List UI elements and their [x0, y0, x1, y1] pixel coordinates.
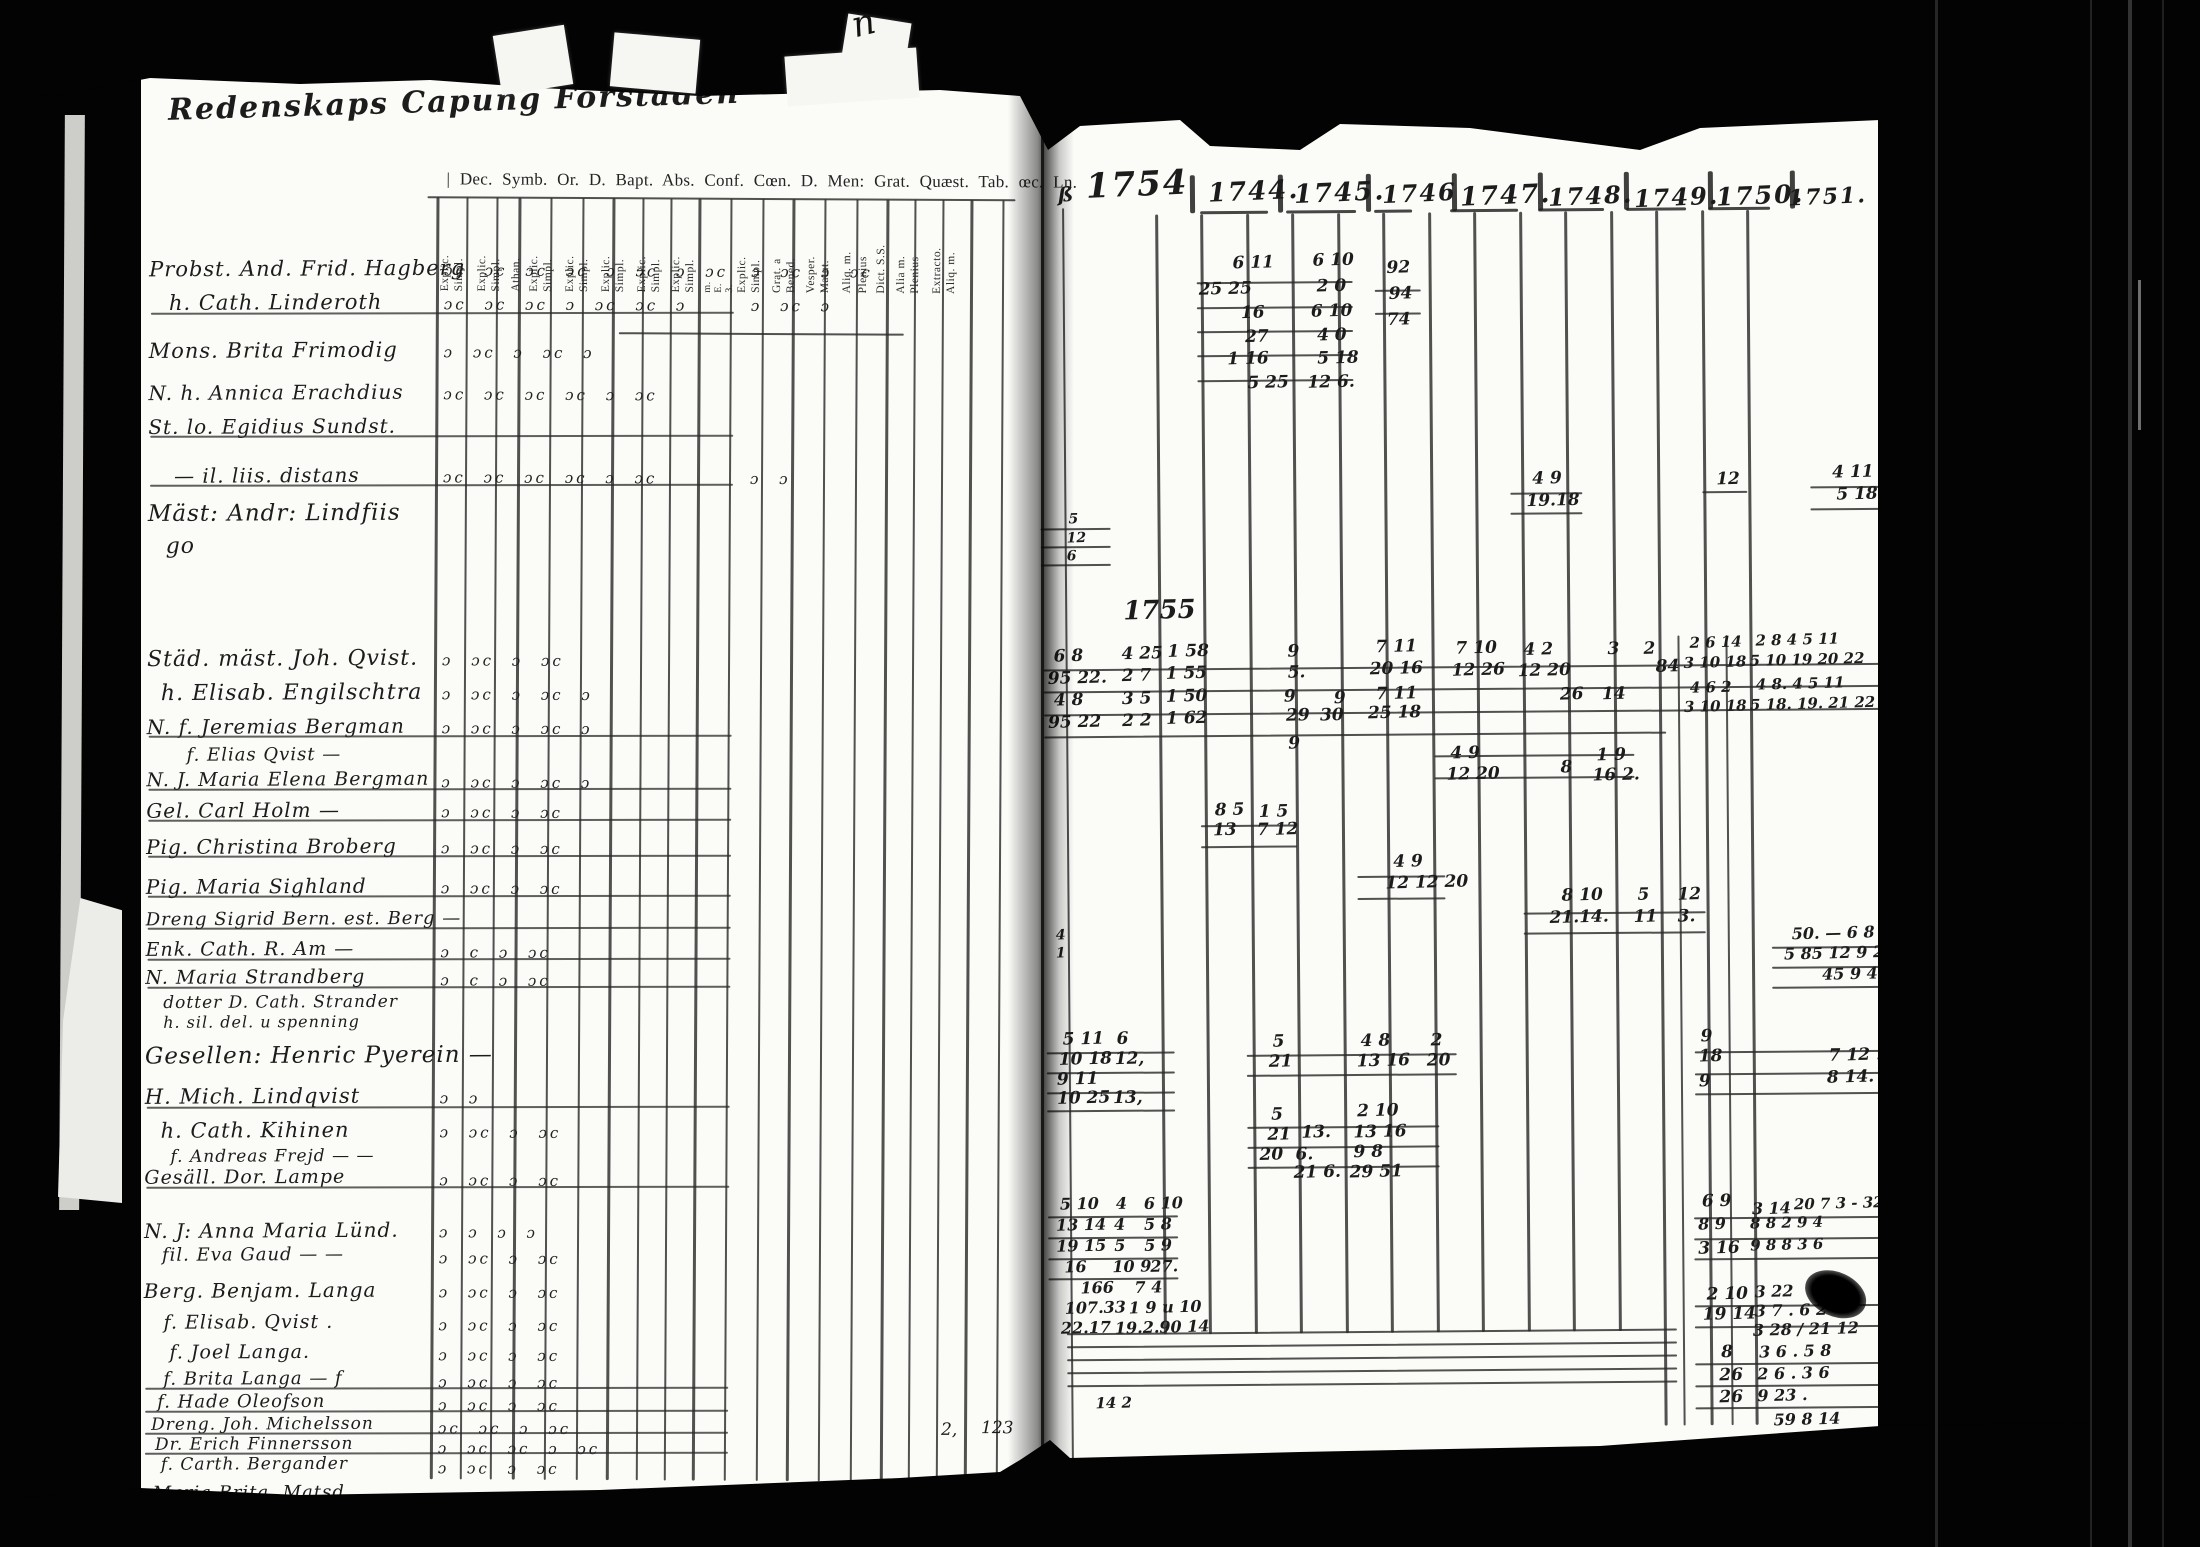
handwritten-number: 25 25: [1199, 280, 1253, 298]
handwritten-number: 27: [1245, 328, 1269, 346]
grid-line: [1510, 512, 1582, 515]
handwritten-number: 12 20: [1518, 662, 1572, 680]
handwritten-number: 1 9 u 10: [1129, 1299, 1202, 1317]
handwritten-number: 6.: [1295, 1146, 1313, 1163]
handwritten-number: 6 10: [1312, 252, 1354, 270]
grid-line: [1067, 1381, 1677, 1388]
handwritten-number: 4: [1114, 1217, 1126, 1233]
grid-line: [1655, 211, 1667, 1426]
handwritten-number: 4 9: [1393, 853, 1423, 871]
handwritten-number: 7 11: [1375, 638, 1417, 656]
handwritten-number: 4 6 2: [1690, 680, 1732, 696]
handwritten-number: 12 12 20: [1385, 873, 1468, 892]
handwritten-number: 12: [1677, 886, 1701, 904]
handwritten-number: 6 10: [1144, 1195, 1183, 1212]
handwritten-number: 8: [1560, 759, 1572, 776]
handwritten-number: 2 7: [1122, 667, 1152, 685]
year-label: 1744.: [1207, 177, 1299, 207]
handwritten-number: 2 6 . 3 6: [1757, 1365, 1830, 1383]
handwritten-number: 2: [1430, 1032, 1442, 1049]
handwritten-number: 6 9: [1702, 1193, 1732, 1211]
handwritten-number: 20: [1427, 1052, 1451, 1070]
handwritten-number: 84: [1655, 658, 1679, 676]
handwritten-number: 5: [1272, 1033, 1284, 1050]
handwritten-number: 4 9: [1532, 470, 1562, 488]
grid-line: [1247, 1073, 1457, 1077]
handwritten-number: 2 6 14: [1689, 635, 1742, 651]
handwritten-number: 3 10 18: [1684, 698, 1747, 715]
handwritten-number: 2: [1643, 641, 1655, 658]
grid-line: [1044, 732, 1666, 739]
handwritten-number: 13 16: [1357, 1052, 1411, 1070]
handwritten-number: 5 18: [1836, 486, 1878, 504]
handwritten-number: 3 16: [1698, 1240, 1740, 1258]
handwritten-number: 3 10 18: [1683, 654, 1746, 671]
handwritten-number: 7 11: [1376, 685, 1418, 703]
handwritten-number: 29 51: [1349, 1163, 1403, 1181]
grid-line: [1524, 931, 1706, 934]
handwritten-number: 16 2.: [1592, 766, 1640, 784]
handwritten-number: 19 14: [1703, 1305, 1757, 1323]
handwritten-number: 21.14.: [1549, 909, 1609, 927]
scan-scratch: [2128, 0, 2132, 1547]
handwritten-number: 12 6.: [1307, 374, 1355, 392]
handwritten-number: 45 9 4: [1822, 965, 1878, 982]
handwritten-number: 26: [1560, 686, 1584, 704]
handwritten-number: 3 28 / 21 12: [1753, 1320, 1859, 1339]
handwritten-number: 74: [1387, 311, 1411, 329]
torn-paper-tab: [610, 32, 700, 93]
grid-line: [1772, 986, 1886, 989]
scan-scratch: [2090, 0, 2092, 1547]
grid-line: [1155, 215, 1166, 1335]
handwritten-number: 59 8 14: [1773, 1411, 1840, 1429]
year-bracket-post: [1190, 175, 1195, 213]
year-label: 1747.: [1459, 181, 1551, 211]
handwritten-number: 21 6.: [1293, 1164, 1341, 1182]
handwritten-number: 16: [1241, 305, 1265, 323]
handwritten-number: 5 8: [1144, 1216, 1172, 1233]
handwritten-number: 12: [1716, 471, 1740, 489]
handwritten-number: 30: [1320, 707, 1344, 725]
handwritten-number: 2 8 4 5 11: [1755, 631, 1839, 648]
scan-scratch: [2162, 0, 2164, 1547]
handwritten-number: 11: [1633, 908, 1657, 926]
grid-line: [1067, 1355, 1677, 1362]
handwritten-number: 6 10: [1311, 303, 1353, 321]
handwritten-number: 10 9: [1112, 1258, 1151, 1275]
handwritten-number: 8 9: [1698, 1216, 1726, 1233]
grid-line: [1201, 845, 1297, 848]
handwritten-number: 5.: [1288, 664, 1306, 681]
handwritten-number: 3: [1607, 641, 1619, 658]
handwritten-number: 92: [1386, 259, 1410, 277]
handwritten-number: 7 10: [1455, 640, 1497, 658]
handwritten-number: 4 11: [1832, 464, 1874, 482]
handwritten-number: 1 62: [1166, 710, 1208, 728]
handwritten-number: 18: [1699, 1048, 1723, 1066]
right-black-margin: [1878, 0, 2200, 1547]
year-label: 1749.: [1634, 184, 1720, 212]
handwritten-number: 7 12 .: [1829, 1046, 1883, 1064]
handwritten-number: 4 9: [1450, 745, 1480, 763]
handwritten-number: 4 0: [1317, 327, 1347, 345]
handwritten-number: 1 16: [1227, 350, 1269, 368]
handwritten-number: 4 8: [1360, 1032, 1390, 1050]
grid-line: [1067, 1342, 1677, 1349]
handwritten-number: 1755: [1123, 597, 1196, 625]
handwritten-number: 1 50: [1166, 688, 1208, 706]
handwritten-number: 13,: [1113, 1089, 1143, 1107]
handwritten-number: 9: [1699, 1073, 1711, 1090]
year-label: 1745.: [1293, 178, 1385, 208]
handwritten-number: 5 18: [1317, 350, 1359, 368]
handwritten-number: 26: [1719, 1389, 1743, 1407]
handwritten-number: 5 10 19 20 22: [1749, 651, 1864, 669]
handwritten-number: 25 18: [1368, 704, 1422, 722]
handwritten-number: 4 8. 4 5 11: [1756, 675, 1845, 692]
grid-line: [1067, 1368, 1677, 1375]
handwritten-number: 50. — 6 8: [1792, 924, 1875, 942]
handwritten-number: 4 25: [1121, 645, 1163, 663]
handwritten-number: 6 11: [1232, 254, 1274, 272]
scan-scratch: [2138, 280, 2141, 430]
year-underline: [1374, 210, 1412, 213]
handwritten-number: 8 8 2 9 4: [1750, 1215, 1823, 1232]
grid-line: [1810, 508, 1880, 511]
handwritten-number: 7 4: [1134, 1279, 1162, 1296]
handwritten-number: 5 85 12 9 2: [1784, 944, 1885, 963]
grid-line: [1248, 1165, 1440, 1169]
handwritten-number: 4: [1116, 1196, 1128, 1212]
scan-scratch: [1935, 0, 1938, 1547]
handwritten-number: 5 18. 19. 21 22: [1750, 695, 1876, 713]
year-underline: [1286, 210, 1356, 214]
handwritten-number: 9: [1284, 688, 1296, 705]
handwritten-number: 9: [1334, 690, 1346, 707]
handwritten-number: 5: [1114, 1238, 1126, 1254]
handwritten-number: 20: [1259, 1146, 1283, 1164]
handwritten-number: 5 9: [1144, 1237, 1172, 1254]
handwritten-number: 1 58: [1167, 643, 1209, 661]
handwritten-number: 3 5: [1122, 690, 1152, 708]
handwritten-number: 20 7 3 - 32: [1794, 1195, 1884, 1212]
handwritten-number: 3.: [1677, 908, 1695, 925]
handwritten-number: 26: [1719, 1367, 1743, 1385]
handwritten-number: 6: [1116, 1031, 1128, 1048]
handwritten-number: 19.18: [1526, 492, 1580, 510]
handwritten-number: 9: [1288, 735, 1300, 752]
handwritten-number: 9 8: [1353, 1144, 1383, 1162]
handwritten-number: 13 16: [1353, 1123, 1407, 1141]
handwritten-number: 13.: [1301, 1124, 1331, 1142]
year-underline: [1200, 211, 1268, 215]
handwritten-number: 2 10: [1357, 1102, 1399, 1120]
handwritten-number: 2 10: [1706, 1286, 1748, 1304]
year-label: 1746: [1381, 180, 1457, 207]
scanned-register-spread: Redenskaps Capung Förstaden | Dec. Symb.…: [0, 0, 2200, 1547]
handwritten-number: 21: [1269, 1053, 1293, 1071]
handwritten-number: 3 6 . 5 8: [1759, 1343, 1832, 1361]
handwritten-number: 19.2.90 14: [1115, 1318, 1210, 1336]
grid-line: [1519, 212, 1530, 1332]
handwritten-number: 4 2: [1523, 641, 1553, 659]
handwritten-number: 3 22: [1754, 1283, 1793, 1300]
handwritten-number: 1 5: [1259, 803, 1289, 821]
handwritten-number: 9: [1700, 1028, 1712, 1045]
handwritten-number: 21: [1267, 1126, 1291, 1144]
handwritten-number: 13: [1213, 822, 1237, 840]
handwritten-number: 5 25: [1247, 374, 1289, 392]
handwritten-number: 94: [1389, 285, 1413, 303]
gutter-fold-line: [1041, 84, 1044, 1484]
grid-line: [1695, 1092, 1885, 1095]
handwritten-number: 8 10: [1561, 887, 1603, 905]
handwritten-number: 8 5: [1215, 802, 1245, 820]
handwritten-number: 9: [1287, 643, 1299, 660]
handwritten-number: 9 8 8 3 6: [1750, 1237, 1823, 1254]
right-page: ß17541744.1745.17461747.1748.1749.1750.1…: [0, 0, 2200, 1547]
handwritten-number: 27.: [1150, 1258, 1178, 1275]
handwritten-number: 2 0: [1316, 278, 1346, 296]
year-label: 1748.: [1548, 182, 1634, 210]
handwritten-number: 29: [1286, 707, 1310, 725]
handwritten-number: 1 55: [1166, 665, 1208, 683]
handwritten-number: 166: [1080, 1280, 1114, 1297]
grid-line: [1357, 897, 1445, 900]
handwritten-number: 12 20: [1446, 765, 1500, 783]
grid-line: [1677, 635, 1685, 1425]
handwritten-number: 12,: [1115, 1050, 1145, 1068]
year-label: 1754: [1085, 166, 1189, 204]
handwritten-number: 8: [1721, 1344, 1733, 1361]
handwritten-number: 1 9: [1596, 747, 1626, 765]
handwritten-number: 14: [1602, 686, 1626, 704]
handwritten-number: 7 12: [1257, 821, 1299, 839]
handwritten-number: 14 2: [1095, 1395, 1132, 1411]
handwritten-number: 8 14.: [1827, 1069, 1875, 1087]
handwritten-number: 12 26: [1452, 661, 1506, 679]
handwritten-number: 5: [1271, 1106, 1283, 1123]
grid-line: [1702, 491, 1747, 493]
handwritten-number: 9 23 .: [1757, 1387, 1807, 1404]
handwritten-number: 20 16: [1369, 660, 1423, 678]
torn-paper-tab: [493, 25, 573, 96]
handwritten-number: 5: [1637, 887, 1649, 904]
handwritten-number: 2 2: [1122, 712, 1152, 730]
